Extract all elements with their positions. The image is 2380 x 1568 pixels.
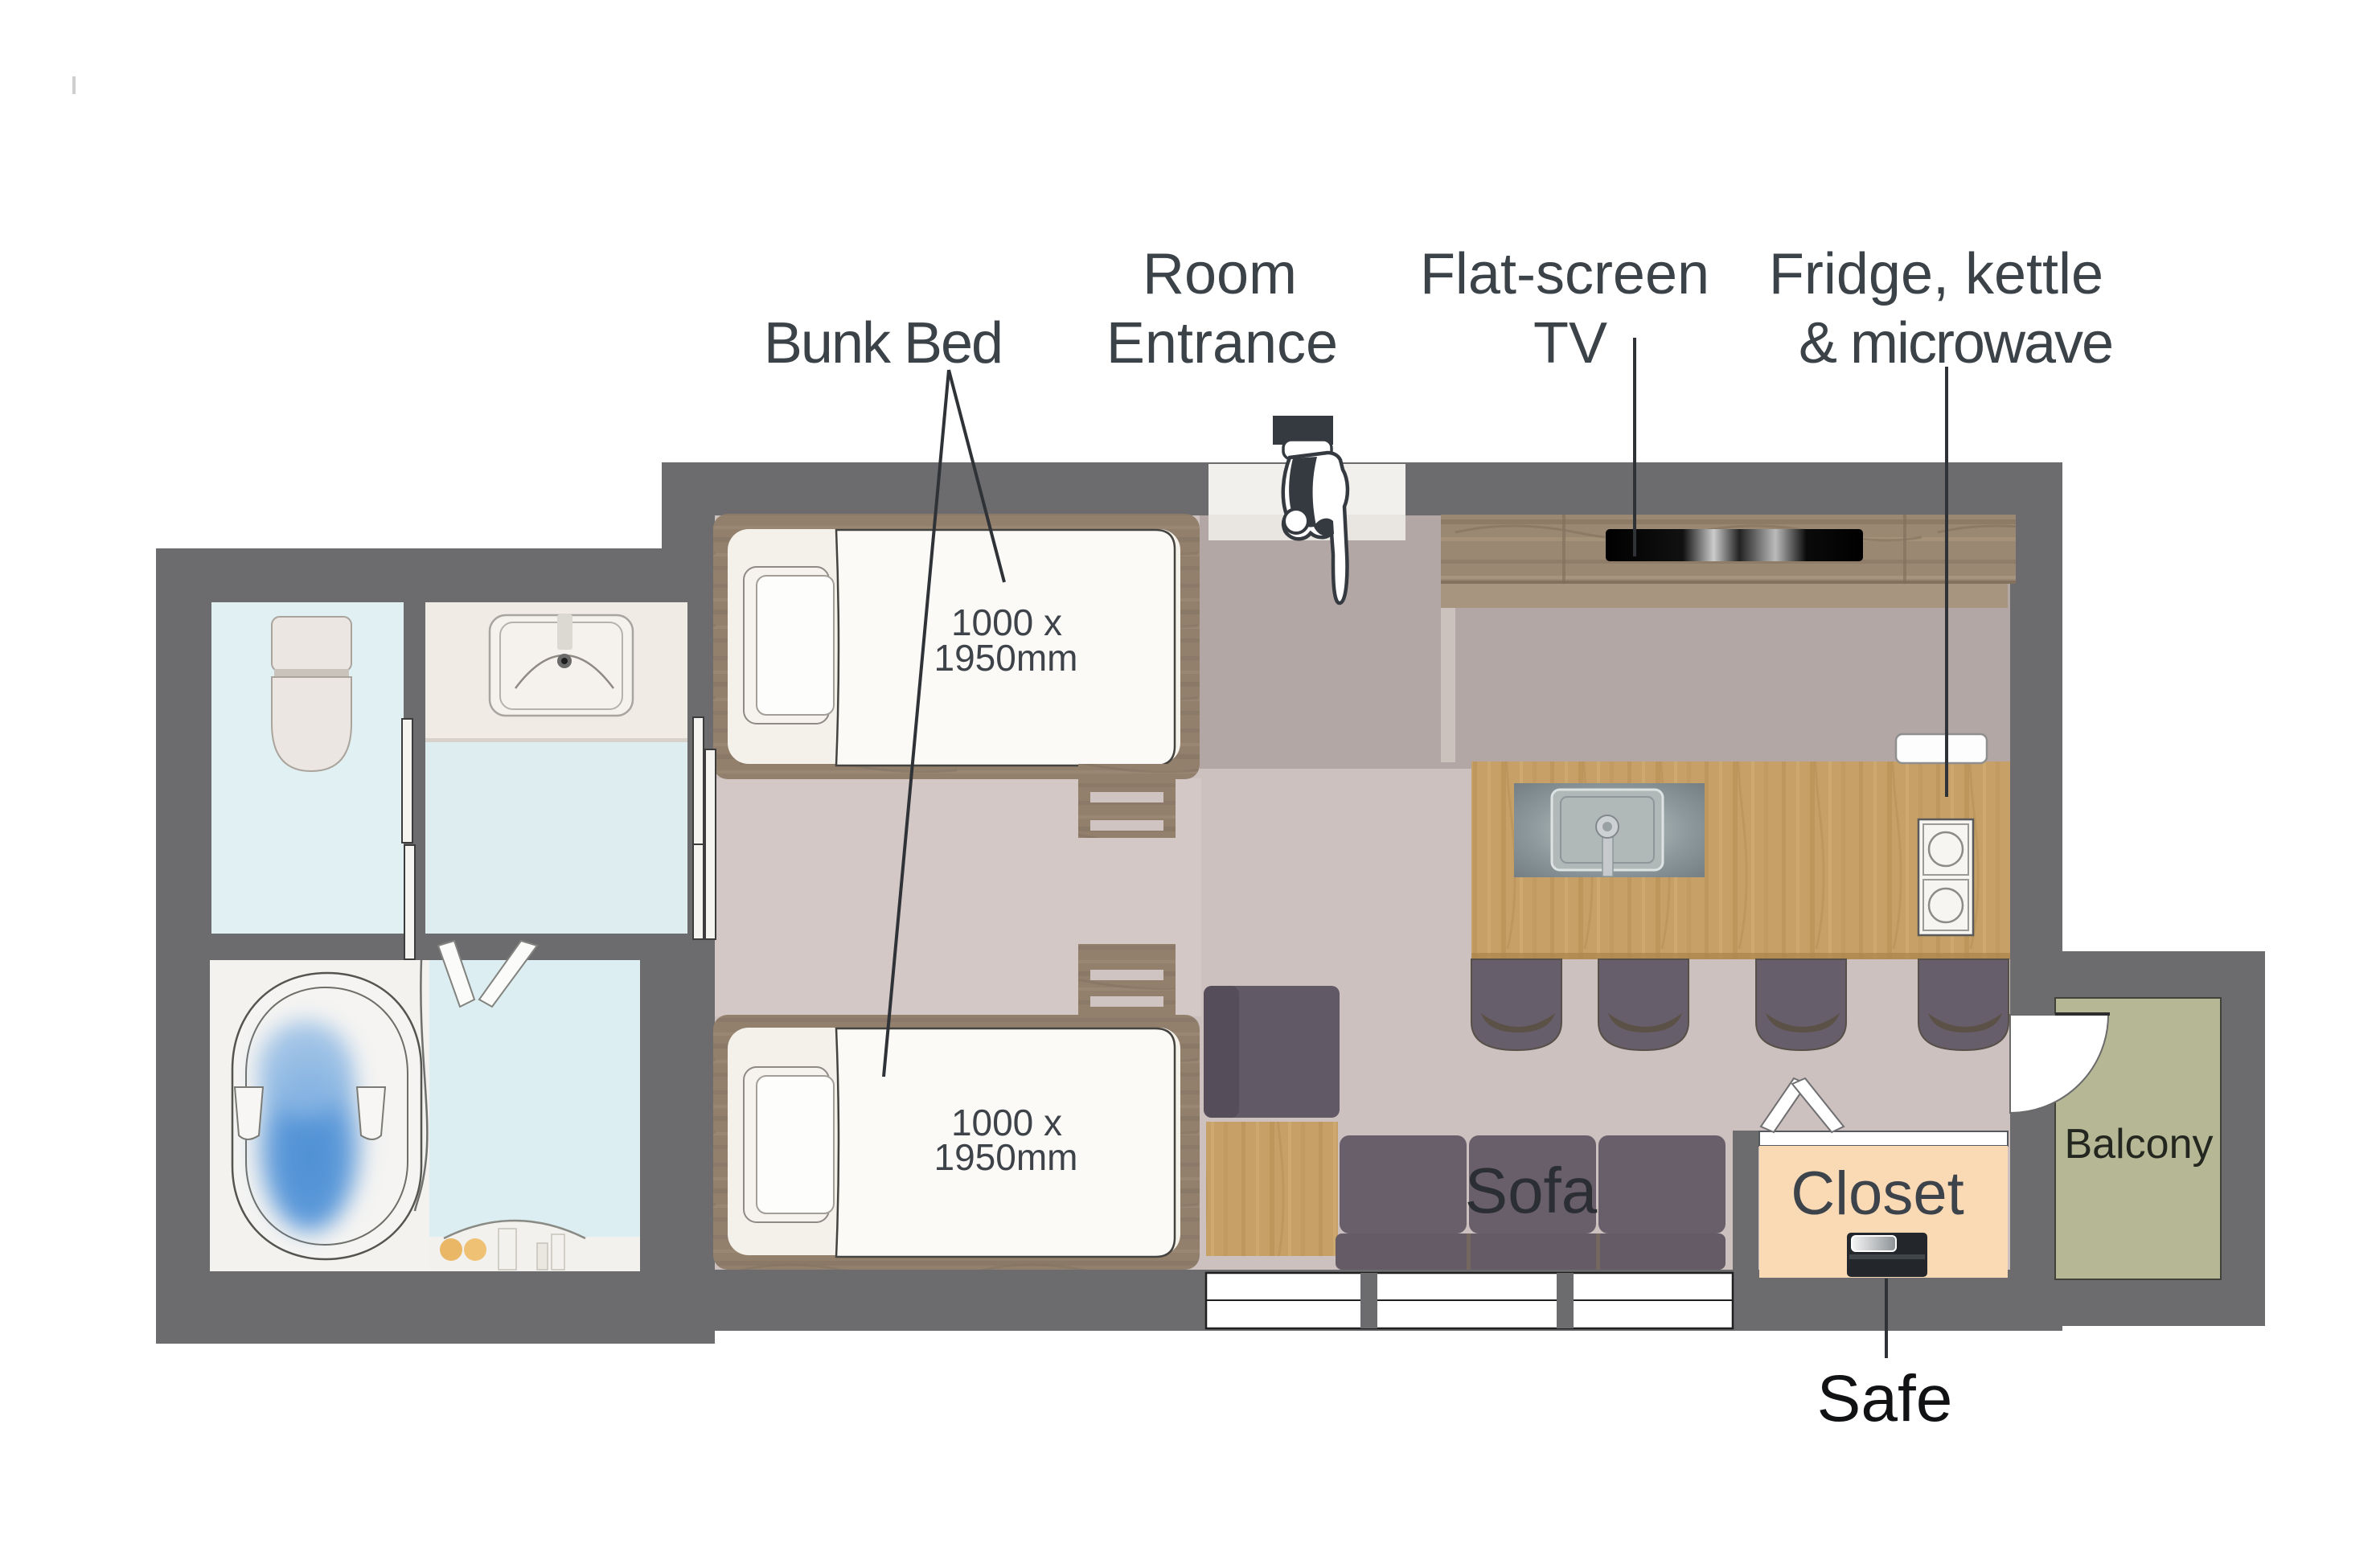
svg-text:Closet: Closet (1791, 1160, 1963, 1228)
svg-text:1950mm: 1950mm (934, 637, 1078, 679)
svg-text:Fridge, kettle: Fridge, kettle (1769, 242, 2103, 306)
svg-text:Bunk Bed: Bunk Bed (764, 311, 1002, 376)
svg-text:Room: Room (1143, 242, 1297, 306)
svg-text:Entrance: Entrance (1106, 311, 1338, 376)
svg-text:& microwave: & microwave (1799, 311, 2112, 376)
svg-text:Sofa: Sofa (1465, 1155, 1598, 1226)
svg-text:Flat-screen: Flat-screen (1420, 242, 1709, 306)
svg-text:TV: TV (1533, 311, 1607, 376)
svg-text:Safe: Safe (1817, 1362, 1953, 1435)
svg-text:Balcony: Balcony (2065, 1121, 2214, 1168)
svg-text:1950mm: 1950mm (934, 1136, 1078, 1178)
